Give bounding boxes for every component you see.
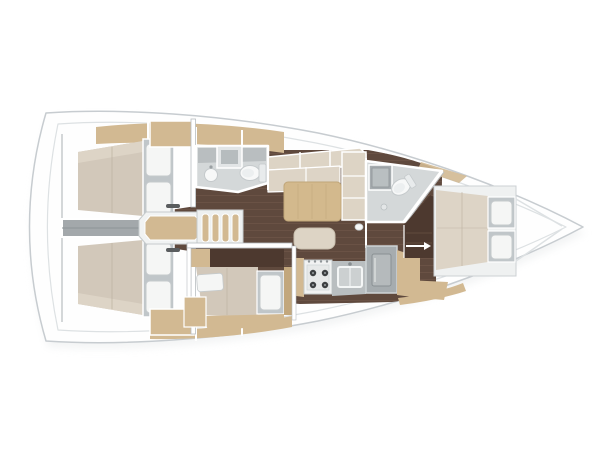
burner-center bbox=[312, 284, 314, 286]
shower-drain bbox=[381, 204, 387, 210]
settee-side-cushion bbox=[342, 152, 366, 220]
pillow bbox=[146, 182, 171, 214]
berth-side-board bbox=[284, 267, 292, 315]
mid-cabin-starboard bbox=[184, 243, 296, 330]
stove-knob bbox=[326, 260, 328, 262]
counter-tan-left bbox=[296, 258, 304, 297]
stove-knob bbox=[308, 260, 310, 262]
ladder-step bbox=[232, 214, 239, 242]
wardrobe bbox=[184, 297, 206, 327]
washbasin-fixture bbox=[205, 169, 218, 182]
pillow bbox=[491, 235, 512, 259]
saloon-stool bbox=[294, 228, 335, 249]
ladder-step bbox=[222, 214, 229, 242]
burner-center bbox=[312, 272, 314, 274]
pillow bbox=[146, 243, 171, 275]
shower-tray bbox=[372, 168, 389, 187]
pillow bbox=[260, 275, 281, 310]
floor-fitting-knob bbox=[355, 224, 363, 230]
pillow bbox=[491, 201, 512, 225]
stove-knob bbox=[320, 260, 322, 262]
stove-knob bbox=[314, 260, 316, 262]
sink-basin-square bbox=[221, 150, 238, 164]
burner-center bbox=[324, 284, 326, 286]
engine-cover-platform bbox=[145, 216, 201, 240]
folded-sheet bbox=[196, 273, 223, 292]
grab-handle bbox=[166, 204, 180, 208]
pillow bbox=[146, 144, 171, 176]
faucet-dot bbox=[209, 165, 212, 168]
floor-plan-svg bbox=[0, 0, 600, 450]
boat-floor-plan-image bbox=[0, 0, 600, 450]
head-aft bbox=[196, 146, 268, 192]
pillow bbox=[146, 281, 171, 313]
cabin-wall bbox=[187, 243, 292, 248]
burner-center bbox=[324, 272, 326, 274]
ladder-step bbox=[202, 214, 209, 242]
toilet-bowl bbox=[242, 169, 254, 178]
grab-handle bbox=[166, 248, 180, 252]
wardrobe bbox=[150, 121, 194, 147]
toilet-tank bbox=[259, 164, 266, 182]
ladder-step bbox=[212, 214, 219, 242]
headboard-dark bbox=[210, 249, 284, 267]
faucet-dot bbox=[348, 262, 352, 266]
cabin-wall bbox=[292, 246, 296, 320]
